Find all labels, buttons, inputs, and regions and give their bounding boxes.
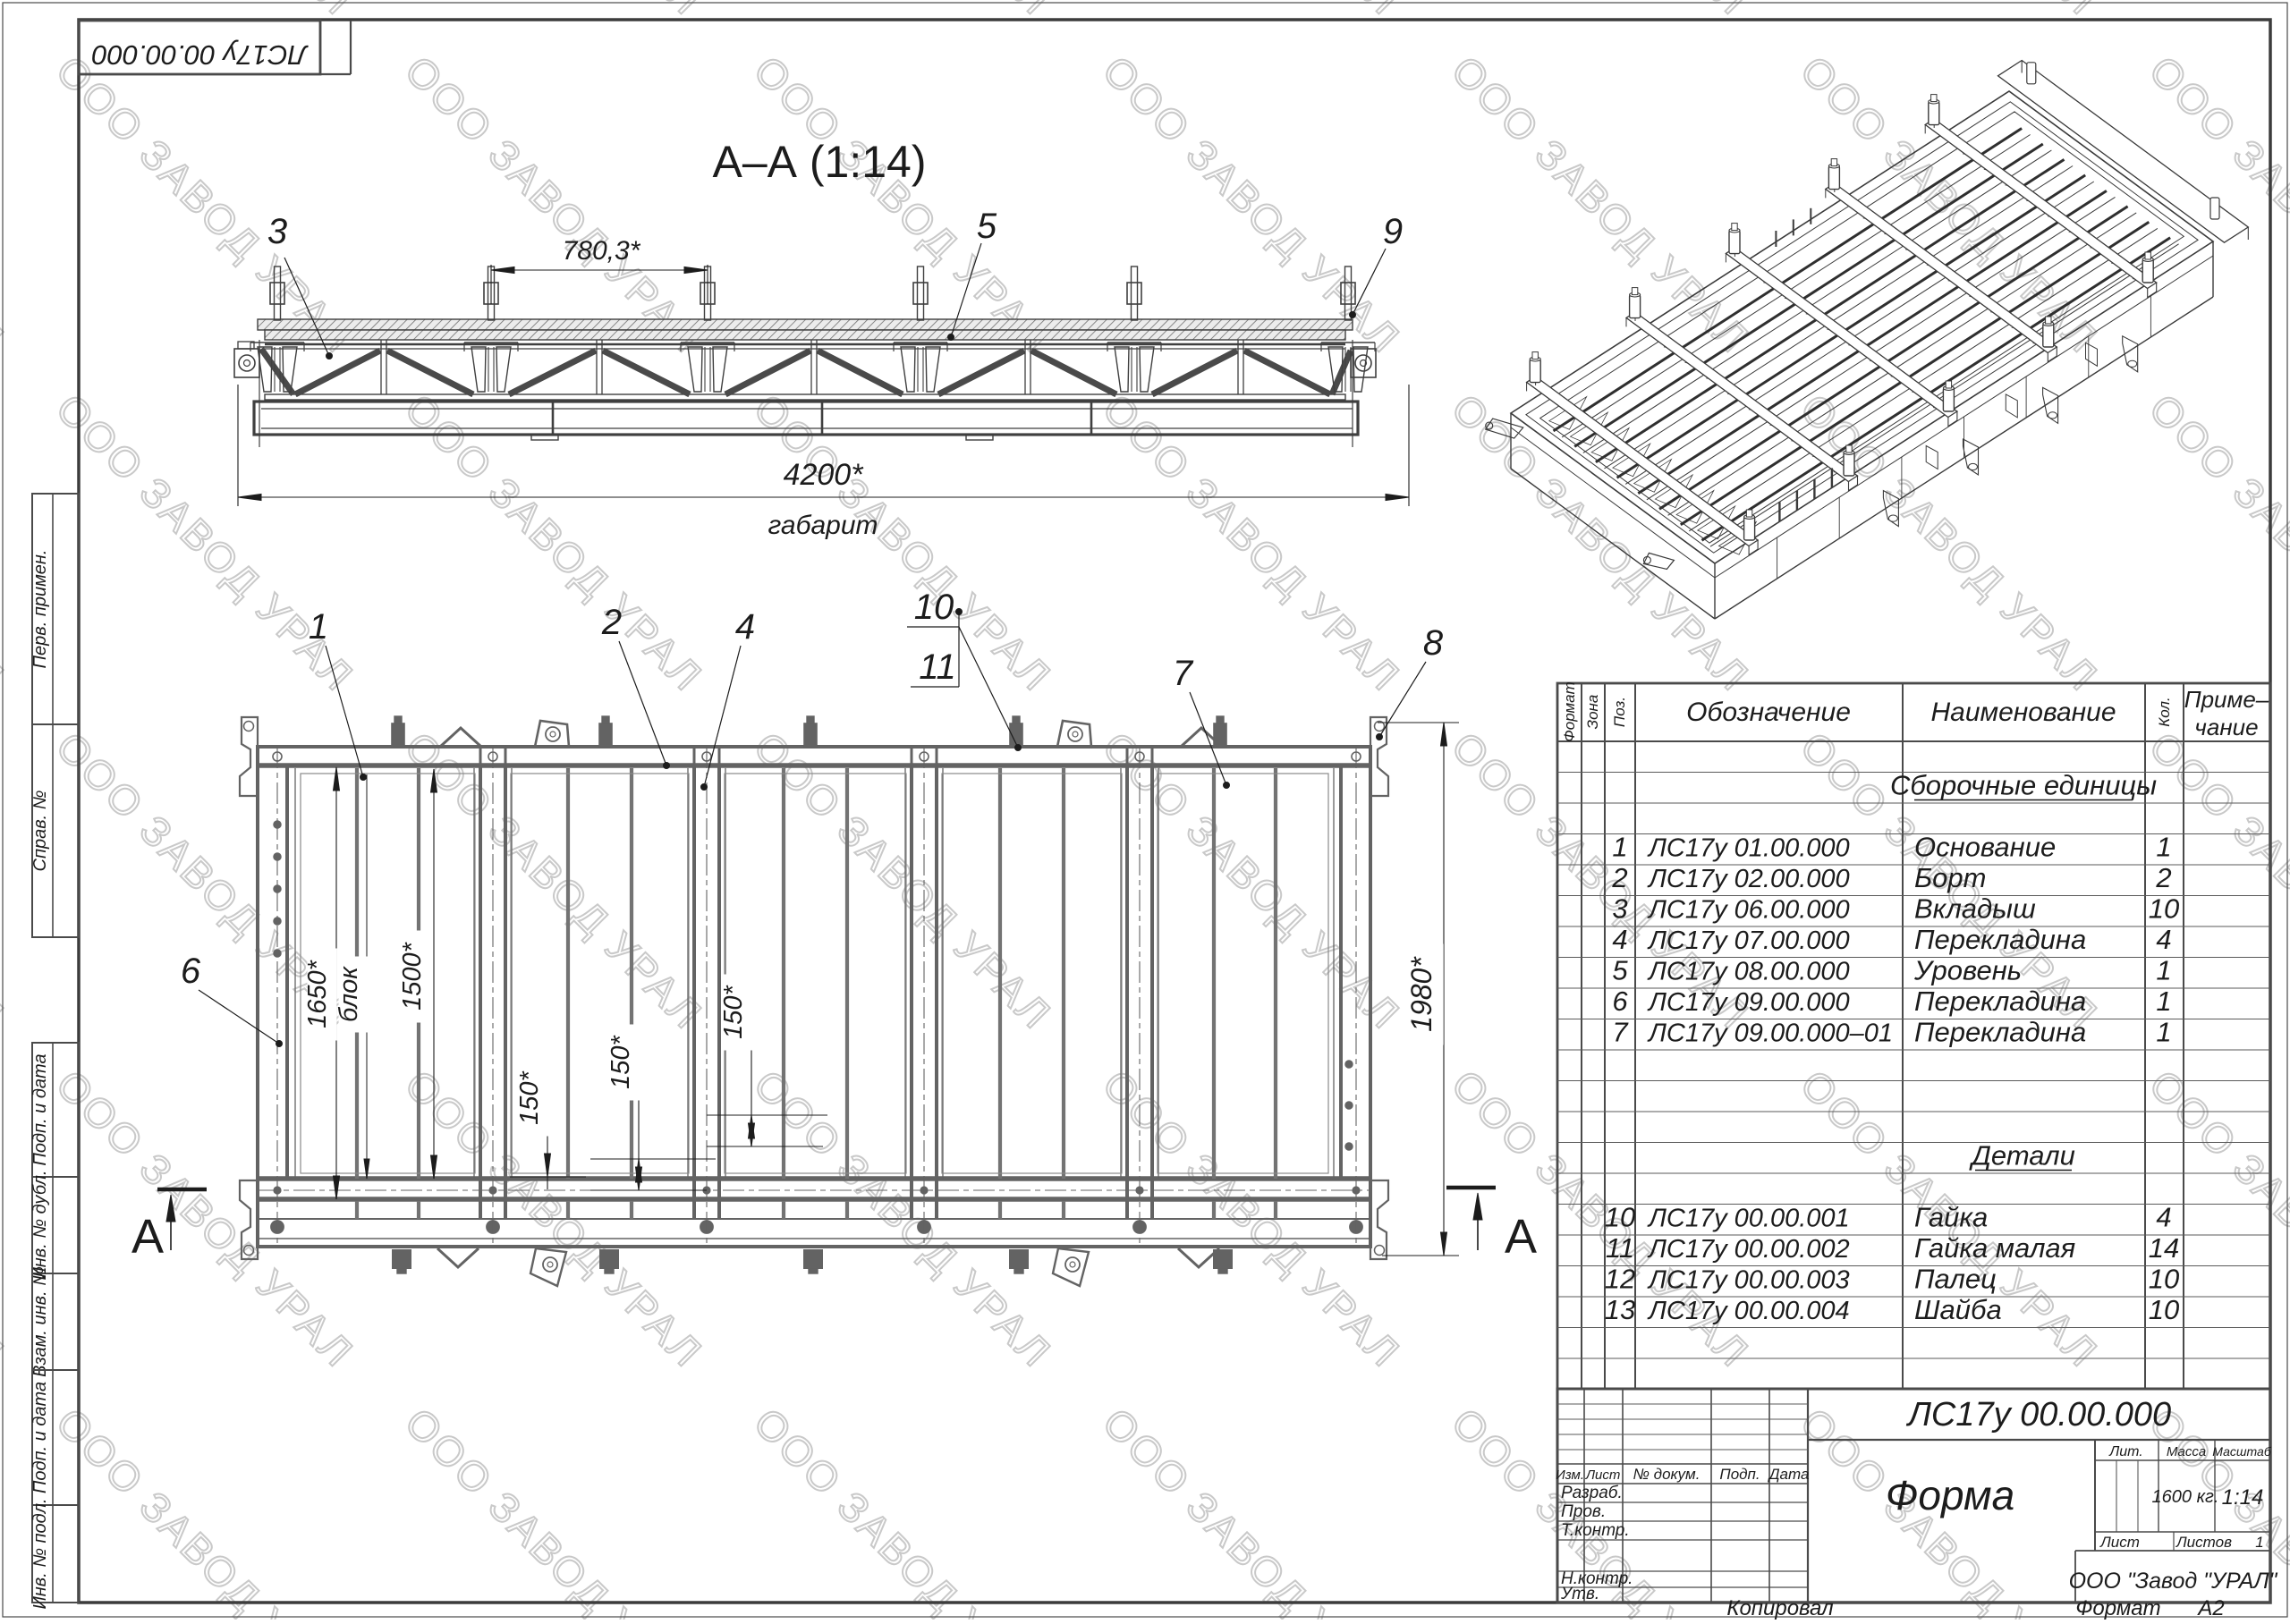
svg-text:2: 2: [1611, 862, 1627, 893]
svg-text:1: 1: [2156, 955, 2171, 986]
svg-text:Поз.: Поз.: [1611, 697, 1628, 727]
svg-text:ЛС17у 00.00.000: ЛС17у 00.00.000: [92, 39, 309, 71]
svg-text:1: 1: [2156, 1017, 2171, 1048]
svg-text:Взам. инв. №: Взам. инв. №: [30, 1266, 50, 1377]
svg-text:10: 10: [2149, 1264, 2179, 1295]
svg-text:6: 6: [181, 952, 201, 991]
svg-text:1:14: 1:14: [2222, 1485, 2264, 1510]
svg-text:Сборочные единицы: Сборочные единицы: [1890, 770, 2157, 801]
svg-text:3: 3: [267, 212, 287, 251]
svg-text:14: 14: [2149, 1232, 2179, 1264]
svg-text:Борт: Борт: [1914, 862, 1986, 893]
svg-text:Наименование: Наименование: [1930, 698, 2116, 727]
svg-text:Пров.: Пров.: [1561, 1502, 1606, 1521]
svg-text:1600 кг.: 1600 кг.: [2152, 1487, 2219, 1507]
svg-text:7: 7: [1173, 654, 1194, 693]
svg-text:150*: 150*: [719, 984, 748, 1038]
svg-text:А: А: [131, 1210, 164, 1264]
svg-text:10: 10: [914, 588, 954, 627]
svg-text:4: 4: [735, 607, 755, 647]
svg-text:Масса: Масса: [2167, 1444, 2206, 1459]
svg-text:Утв.: Утв.: [1560, 1585, 1599, 1603]
svg-text:Приме–: Приме–: [2184, 686, 2269, 713]
svg-text:3: 3: [1612, 893, 1627, 925]
svg-text:Перв. примен.: Перв. примен.: [30, 550, 50, 669]
svg-text:блок: блок: [335, 966, 363, 1022]
svg-text:Кол.: Кол.: [2156, 697, 2173, 726]
svg-text:11: 11: [919, 647, 956, 687]
svg-text:ЛС17у 09.00.000–01: ЛС17у 09.00.000–01: [1647, 1019, 1893, 1048]
svg-text:9: 9: [1383, 212, 1403, 251]
svg-text:13: 13: [1605, 1294, 1635, 1325]
svg-text:Зона: Зона: [1584, 695, 1601, 730]
svg-text:Изм.: Изм.: [1556, 1468, 1584, 1483]
svg-text:Гайка: Гайка: [1914, 1202, 1988, 1233]
svg-text:4: 4: [2156, 924, 2171, 955]
svg-text:чание: чание: [2194, 714, 2258, 740]
svg-text:Лист: Лист: [2099, 1534, 2140, 1551]
svg-text:Разраб.: Разраб.: [1561, 1484, 1623, 1502]
svg-text:Инв. № подл.: Инв. № подл.: [30, 1498, 50, 1609]
svg-text:Перекладина: Перекладина: [1914, 985, 2086, 1017]
svg-text:ЛС17у 00.00.003: ЛС17у 00.00.003: [1647, 1266, 1850, 1295]
svg-text:Лист: Лист: [1585, 1468, 1621, 1483]
svg-text:6: 6: [1612, 985, 1628, 1017]
svg-text:Уровень: Уровень: [1913, 955, 2022, 986]
svg-text:ЛС17у 09.00.000: ЛС17у 09.00.000: [1647, 988, 1850, 1017]
svg-text:Основание: Основание: [1914, 832, 2056, 863]
svg-text:7: 7: [1612, 1017, 1629, 1048]
svg-text:Обозначение: Обозначение: [1686, 698, 1851, 727]
svg-text:4200*: 4200*: [784, 458, 865, 492]
svg-text:А2: А2: [2196, 1596, 2224, 1620]
svg-text:Дата: Дата: [1768, 1466, 1810, 1483]
svg-text:1: 1: [309, 607, 328, 647]
svg-text:Лит.: Лит.: [2108, 1444, 2142, 1459]
svg-text:Подп.: Подп.: [1719, 1466, 1760, 1483]
svg-text:1: 1: [2255, 1534, 2263, 1551]
svg-text:12: 12: [1605, 1264, 1635, 1295]
svg-text:1: 1: [2156, 832, 2171, 863]
svg-text:ЛС17у 00.00.001: ЛС17у 00.00.001: [1647, 1205, 1850, 1233]
svg-text:ЛС17у 06.00.000: ЛС17у 06.00.000: [1647, 896, 1850, 925]
svg-text:ЛС17у 00.00.002: ЛС17у 00.00.002: [1647, 1235, 1850, 1264]
svg-text:Т.контр.: Т.контр.: [1561, 1521, 1630, 1540]
svg-text:150*: 150*: [606, 1034, 635, 1088]
svg-text:ЛС17у 00.00.000: ЛС17у 00.00.000: [1905, 1396, 2171, 1434]
svg-text:5: 5: [977, 207, 997, 246]
svg-text:Формат: Формат: [2075, 1596, 2160, 1620]
svg-text:10: 10: [2149, 1294, 2179, 1325]
svg-text:1: 1: [2156, 985, 2171, 1017]
svg-text:Справ. №: Справ. №: [30, 791, 50, 872]
svg-text:Инв. № дубл.: Инв. № дубл.: [30, 1171, 50, 1281]
svg-text:№ докум.: № докум.: [1633, 1466, 1701, 1483]
svg-text:5: 5: [1612, 955, 1628, 986]
svg-text:Листов: Листов: [2175, 1534, 2232, 1551]
svg-text:Перекладина: Перекладина: [1914, 1017, 2086, 1048]
svg-text:11: 11: [1606, 1232, 1634, 1264]
svg-text:4: 4: [1612, 924, 1627, 955]
svg-text:780,3*: 780,3*: [563, 236, 641, 266]
svg-text:Подп. и дата: Подп. и дата: [30, 1053, 50, 1165]
svg-text:габарит: габарит: [768, 511, 878, 540]
svg-text:А: А: [1505, 1210, 1537, 1264]
svg-text:ЛС17у 07.00.000: ЛС17у 07.00.000: [1647, 926, 1850, 955]
svg-text:ЛС17у 00.00.004: ЛС17у 00.00.004: [1647, 1297, 1850, 1325]
svg-text:2: 2: [601, 603, 622, 642]
svg-text:Форма: Форма: [1886, 1472, 2014, 1518]
svg-text:Формат: Формат: [1561, 681, 1578, 742]
svg-text:Детали: Детали: [1969, 1140, 2075, 1171]
svg-text:4: 4: [2156, 1202, 2171, 1233]
svg-text:А–А (1:14): А–А (1:14): [712, 137, 926, 187]
svg-text:ООО "Завод "УРАЛ": ООО "Завод "УРАЛ": [2069, 1569, 2278, 1594]
svg-text:8: 8: [1423, 623, 1444, 663]
svg-text:Копировал: Копировал: [1726, 1596, 1834, 1620]
svg-text:2: 2: [2155, 862, 2171, 893]
svg-text:Перекладина: Перекладина: [1914, 924, 2086, 955]
svg-text:150*: 150*: [515, 1070, 544, 1124]
svg-text:10: 10: [1605, 1202, 1635, 1233]
svg-text:Вкладыш: Вкладыш: [1914, 893, 2036, 925]
svg-text:ЛС17у 08.00.000: ЛС17у 08.00.000: [1647, 958, 1850, 986]
svg-text:Подп. и дата: Подп. и дата: [30, 1382, 50, 1493]
svg-text:Масштаб: Масштаб: [2212, 1444, 2272, 1459]
svg-text:10: 10: [2149, 893, 2179, 925]
svg-text:1: 1: [1612, 832, 1627, 863]
svg-text:1980*: 1980*: [1405, 956, 1438, 1032]
svg-text:Палец: Палец: [1914, 1264, 1997, 1295]
svg-text:1650*: 1650*: [303, 959, 332, 1028]
svg-text:Гайка малая: Гайка малая: [1914, 1232, 2075, 1264]
svg-text:ЛС17у 02.00.000: ЛС17у 02.00.000: [1647, 865, 1850, 893]
svg-text:ЛС17у 01.00.000: ЛС17у 01.00.000: [1647, 834, 1850, 863]
svg-text:1500*: 1500*: [398, 941, 427, 1011]
svg-text:Шайба: Шайба: [1914, 1294, 2002, 1325]
